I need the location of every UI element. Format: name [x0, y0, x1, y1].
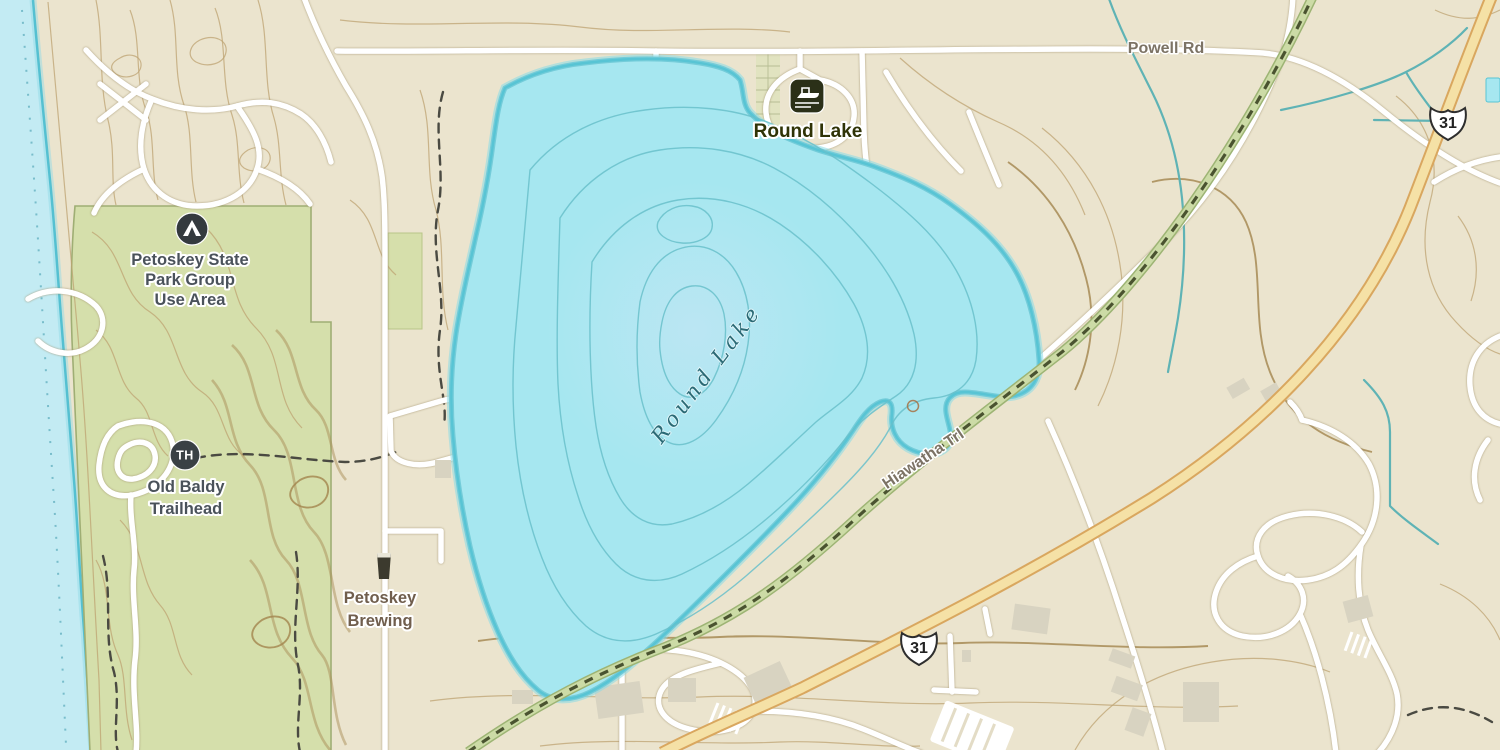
- brewing-label-line1: Petoskey: [344, 589, 417, 607]
- old-baldy-label-line2: Trailhead: [150, 500, 222, 518]
- campground-icon[interactable]: [176, 213, 208, 245]
- old-baldy-label-line1: Old Baldy: [147, 478, 225, 496]
- park-group-label-line3: Use Area: [155, 291, 227, 309]
- powell-rd-label: Powell Rd: [1128, 40, 1204, 57]
- trailhead-icon[interactable]: TH: [170, 440, 200, 470]
- brewing-label-line2: Brewing: [347, 612, 412, 630]
- route-31-number-south: 31: [910, 640, 928, 657]
- park-group-label-line2: Park Group: [145, 271, 235, 289]
- map-canvas[interactable]: Powell Rd Round Lake Hiawatha Trl Round …: [0, 0, 1500, 750]
- park-group-label-line1: Petoskey State: [131, 251, 248, 269]
- beer-icon[interactable]: [377, 553, 391, 579]
- round-lake-poi-label: Round Lake: [754, 121, 863, 142]
- trailhead-abbr: TH: [176, 449, 194, 463]
- small-pond: [1486, 78, 1500, 102]
- map-svg[interactable]: Powell Rd Round Lake Hiawatha Trl Round …: [0, 0, 1500, 750]
- route-31-number-north: 31: [1439, 115, 1457, 132]
- boat-launch-icon[interactable]: [790, 79, 824, 113]
- green-patch: [388, 233, 422, 329]
